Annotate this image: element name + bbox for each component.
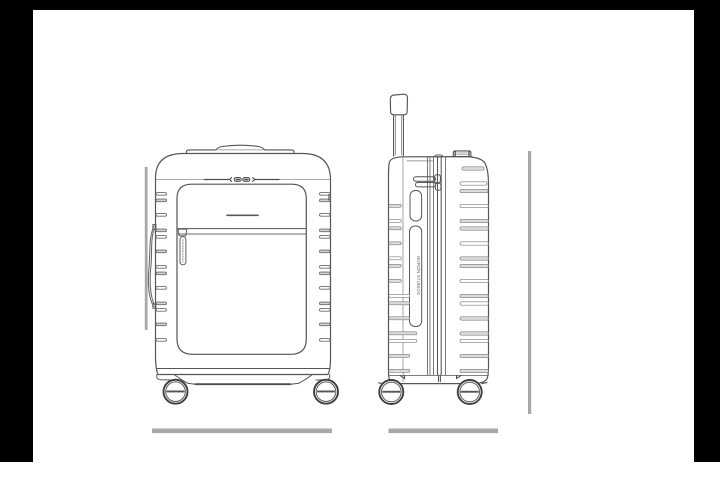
svg-text:HORIZN STUDIOS: HORIZN STUDIOS (416, 256, 421, 295)
